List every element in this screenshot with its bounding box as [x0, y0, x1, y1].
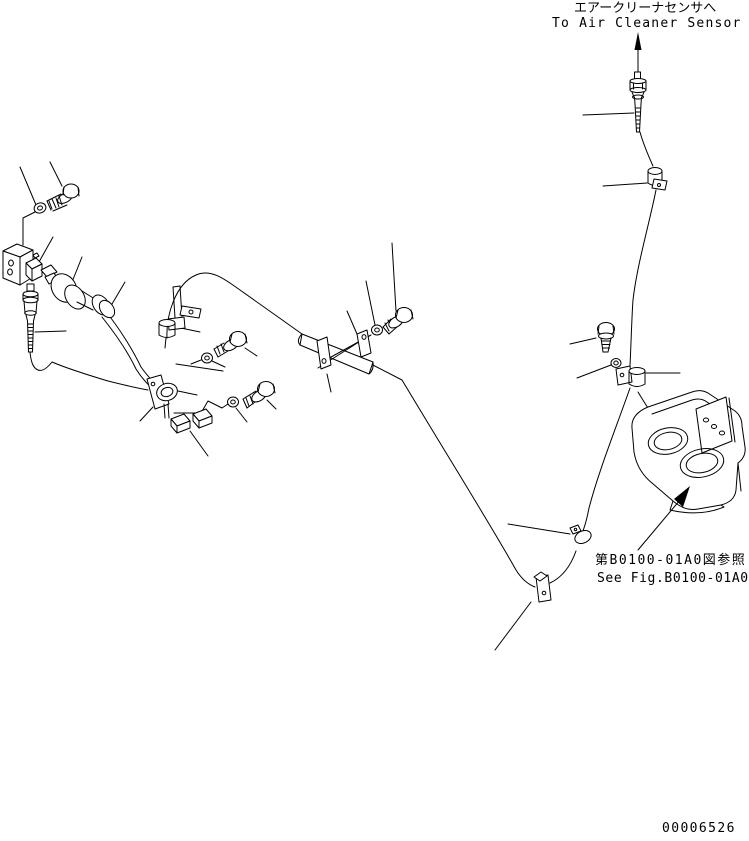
reference-figure-label-jp: 第B0100-01A0図参照	[595, 554, 746, 569]
mounting-plate	[298, 330, 373, 392]
reference-arrow	[638, 486, 690, 550]
small-clip-1	[171, 414, 190, 433]
parts-diagram-canvas: エアークリーナセンサへ To Air Cleaner Sensor 第B0100…	[0, 0, 749, 841]
hex-bolt-top-left	[47, 184, 79, 211]
two-hole-mounting-bracket	[632, 391, 745, 513]
hex-bolt-right	[598, 323, 615, 353]
hex-bolt-2	[243, 382, 275, 409]
air-cleaner-sensor-connector	[630, 72, 646, 132]
line-art-drawing	[0, 0, 749, 841]
flat-washer-3	[372, 325, 383, 335]
flat-washer-2	[228, 397, 239, 407]
reference-figure-label-en: See Fig.B0100-01A0	[597, 572, 749, 587]
hex-bolt-1	[214, 332, 247, 358]
threaded-plug	[23, 284, 38, 352]
sensor-assembly	[41, 265, 118, 321]
air-cleaner-sensor-label-en: To Air Cleaner Sensor	[552, 17, 742, 32]
air-cleaner-sensor-label-jp: エアークリーナセンサへ	[574, 2, 716, 17]
flat-washer-1	[202, 353, 213, 363]
direction-arrow-up	[635, 32, 642, 72]
hex-bolt-4	[383, 308, 413, 335]
small-clip-2	[193, 409, 212, 428]
harness-clip-2	[534, 572, 551, 602]
harness-clip-1	[570, 525, 593, 546]
harness-clamp-right	[616, 366, 645, 387]
harness-clip-a	[648, 168, 667, 191]
document-number: 00006526	[662, 822, 736, 837]
leader-lines	[20, 113, 680, 650]
flat-washer-right	[611, 359, 621, 368]
harness-clamp-2	[147, 375, 180, 418]
